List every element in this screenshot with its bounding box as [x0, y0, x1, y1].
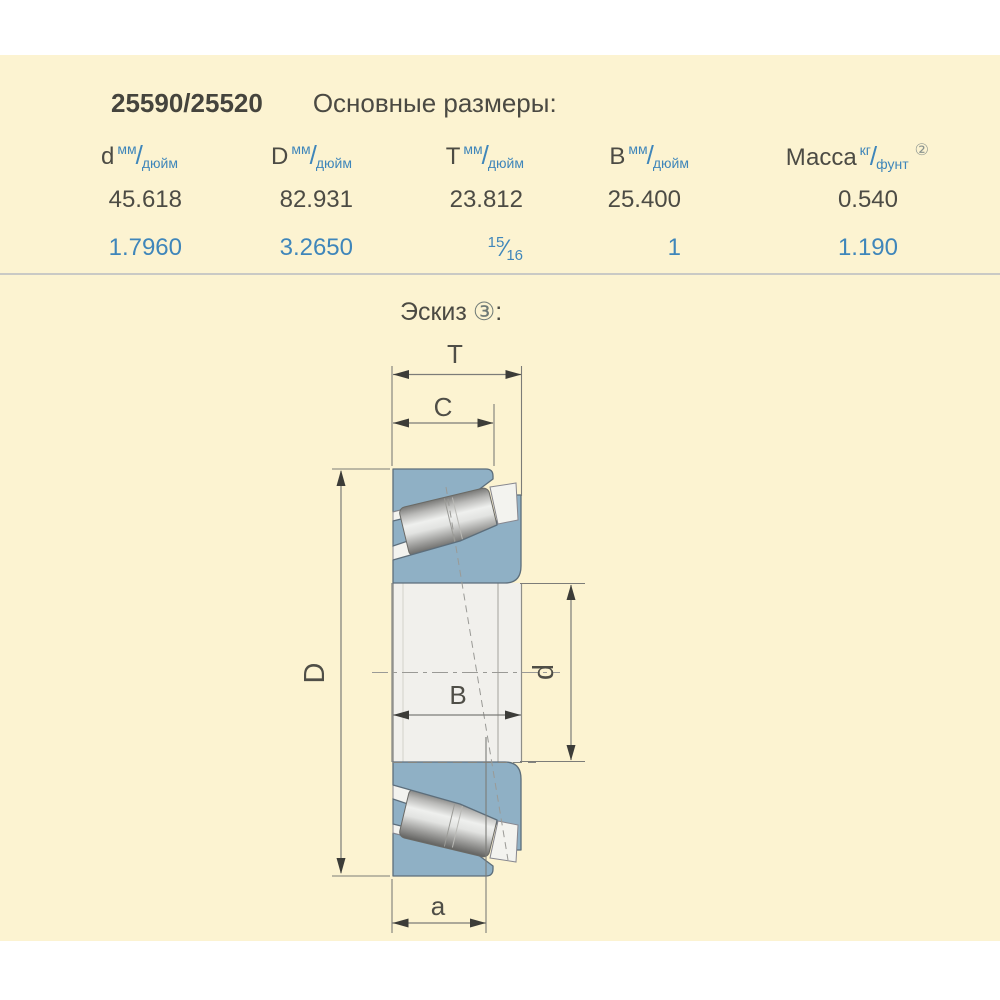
arrow-d-bottom	[567, 745, 576, 761]
arrow-D-top	[337, 470, 346, 486]
dim-label-a: a	[431, 891, 446, 921]
dim-label-D: D	[299, 663, 331, 684]
arrow-C-left	[393, 419, 409, 428]
spec-sheet-page: 25590/25520Основные размеры: dмм/дюйм Dм…	[0, 0, 1000, 1000]
arrow-a-left	[393, 919, 409, 928]
arrow-T-right	[506, 370, 522, 379]
arrow-T-left	[393, 370, 409, 379]
dim-label-T: T	[447, 339, 463, 369]
arrow-D-bottom	[337, 858, 346, 874]
bearing-sketch-drawing: T C D d B a	[0, 0, 1000, 1000]
dim-label-d: d	[528, 664, 560, 680]
arrow-d-top	[567, 585, 576, 601]
dim-label-B: B	[449, 680, 466, 710]
arrow-C-right	[478, 419, 494, 428]
arrow-a-right	[470, 919, 486, 928]
dim-label-C: C	[434, 392, 453, 422]
